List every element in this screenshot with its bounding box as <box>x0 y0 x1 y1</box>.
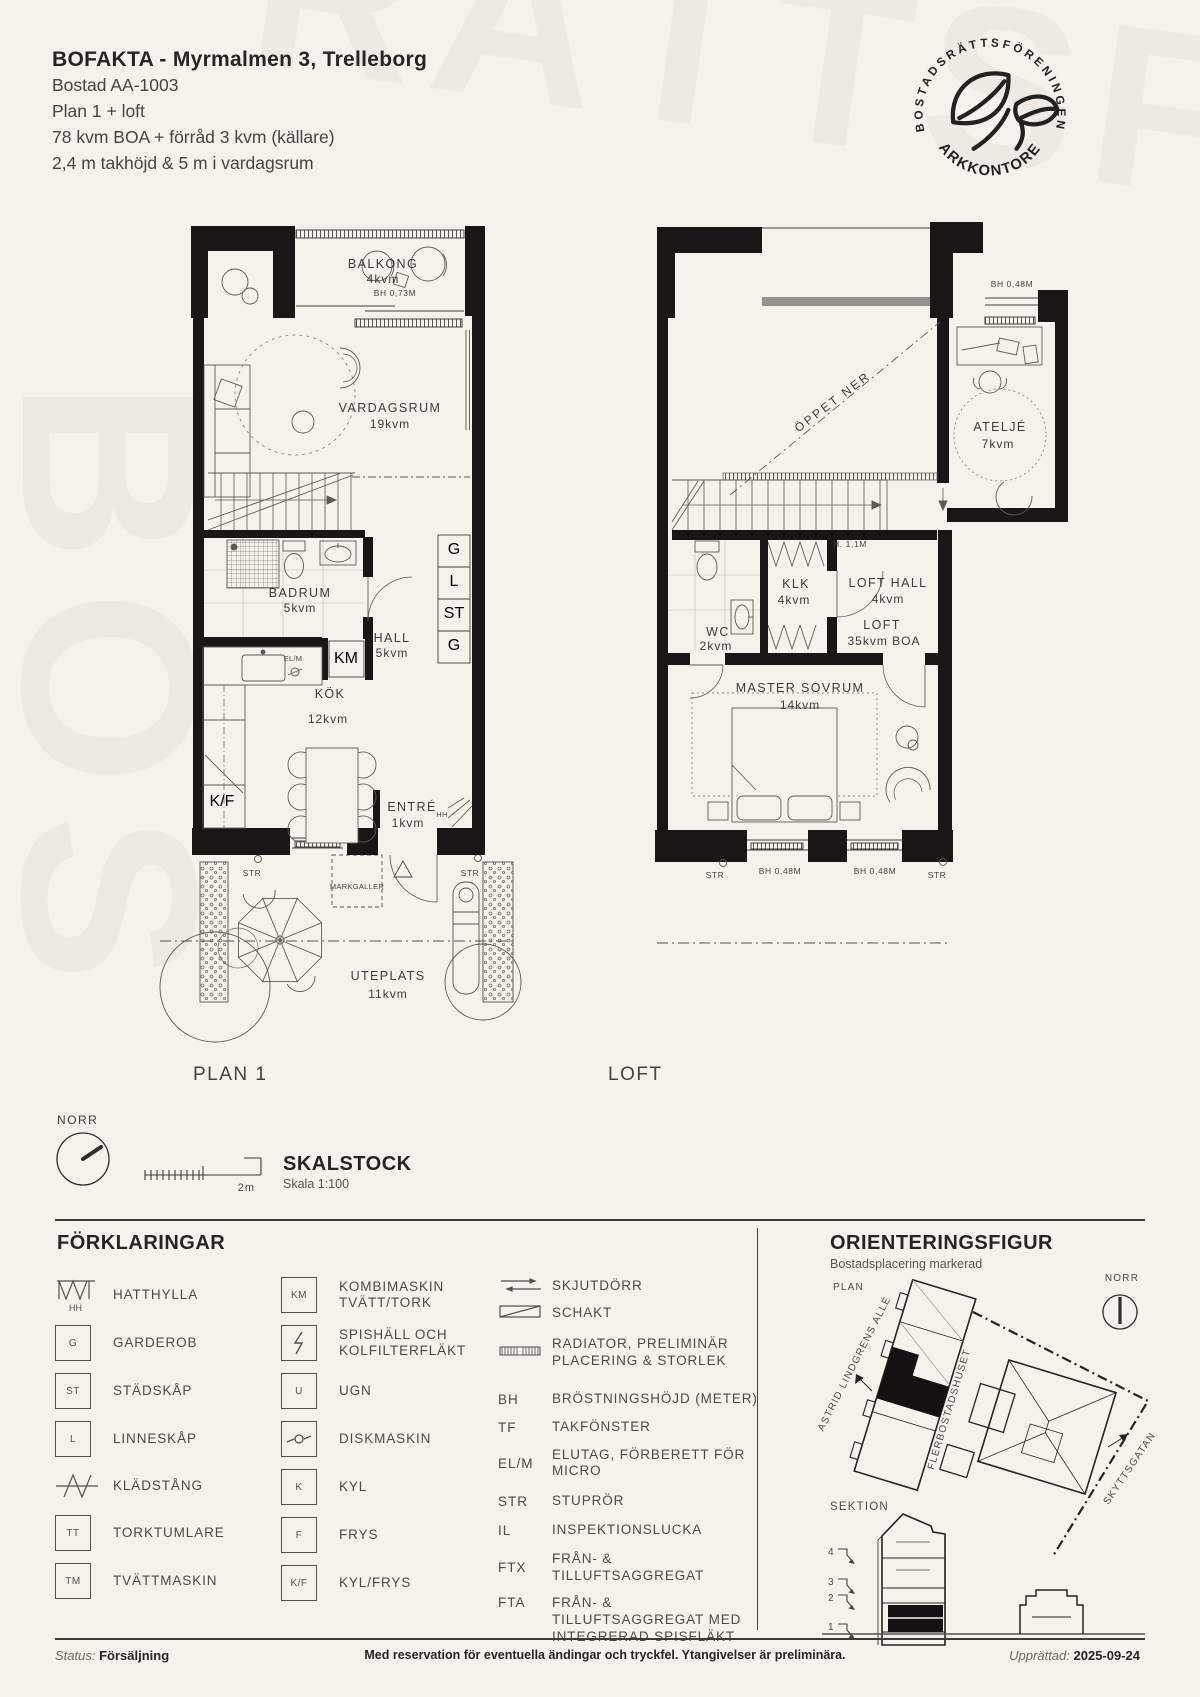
legend-label: SCHAKT <box>552 1305 612 1322</box>
legend-item-hatthylla: HH HATTHYLLA <box>55 1277 270 1313</box>
neighbor-building <box>978 1360 1116 1494</box>
room-label-kok: KÖK <box>315 687 346 701</box>
parkkontoret-logo: BOSTADSRÄTTSFÖRENINGEN •PARKKONTORET• <box>898 22 1082 206</box>
floor-label-2: 2 <box>828 1593 835 1604</box>
legend-label: KLÄDSTÅNG <box>113 1478 203 1494</box>
created-value: 2025-09-24 <box>1074 1648 1141 1663</box>
legend-label: RADIATOR, PRELIMINÄR PLACERING & STORLEK <box>552 1336 752 1370</box>
header-plan: Plan 1 + loft <box>52 98 427 124</box>
legend-item-stadskap: ST STÄDSKÅP <box>55 1373 270 1409</box>
abbr-ftx: FTX <box>498 1560 552 1575</box>
legend-col3: SKJUTDÖRR SCHAKT RADIATOR, PRELIMINÄR PL… <box>498 1277 760 1645</box>
norr-label: NORR <box>57 1113 98 1127</box>
legend-label: FRÅN- & TILLUFTSAGGREGAT <box>552 1551 760 1585</box>
legend-item-linneskap: L LINNESKÅP <box>55 1421 270 1457</box>
room-label-atelje: ATELJÉ <box>973 419 1026 434</box>
str-label: STR <box>706 870 725 880</box>
skalstock-title: SKALSTOCK <box>283 1153 412 1176</box>
stupror-icon <box>255 856 262 863</box>
garderob-symbol: G <box>55 1325 91 1361</box>
header: BOFAKTA - Myrmalmen 3, Trelleborg Bostad… <box>52 48 427 176</box>
kladstang-icon <box>55 1473 99 1499</box>
orientering-title: ORIENTERINGSFIGUR <box>830 1232 1053 1255</box>
tvattmaskin-symbol: TM <box>55 1563 91 1599</box>
closet-label-st: ST <box>444 605 465 622</box>
legend-item-kylfrys: K/F KYL/FRYS <box>281 1565 493 1601</box>
abbr-tf: TF <box>498 1420 552 1435</box>
skala-value: Skala 1:100 <box>283 1177 349 1191</box>
room-area-kok: 12kvm <box>308 712 348 726</box>
sektion-label: SEKTION <box>830 1501 889 1513</box>
room-label-entre: ENTRÉ <box>387 799 436 814</box>
legend-item-skjutdorr: SKJUTDÖRR <box>498 1277 760 1296</box>
legend-label: INSPEKTIONSLUCKA <box>552 1522 702 1539</box>
legend-item-garderob: G GARDEROB <box>55 1325 270 1361</box>
oppet-ner-label: ÖPPET NER <box>792 369 874 435</box>
leaf-icon <box>953 73 1058 148</box>
scale-bar: 2m <box>143 1153 278 1195</box>
scale-length-label: 2m <box>238 1182 255 1194</box>
room-label-loft: LOFT <box>863 618 901 632</box>
room-area-wc: 2kvm <box>700 639 733 653</box>
legend-label: TORKTUMLARE <box>113 1525 225 1541</box>
footer-status: Status: Försäljning <box>55 1648 169 1663</box>
hatthylla-icon: HH <box>55 1277 99 1313</box>
linneskap-symbol: L <box>55 1421 91 1457</box>
bofakta-page: RÄTTSF BOS BOFAKTA - Myrmalmen 3, Trelle… <box>0 0 1200 1697</box>
abbr-bh: BH <box>498 1392 552 1407</box>
legend-item-kombimaskin: KM KOMBIMASKIN TVÄTT/TORK <box>281 1277 493 1313</box>
legend-label: SKJUTDÖRR <box>552 1278 643 1295</box>
markgaller-label: MARKGALLER <box>330 882 385 891</box>
kylfrys-symbol: K/F <box>281 1565 317 1601</box>
skjutdorr-icon <box>498 1277 552 1296</box>
legend-item-spishall: SPISHÄLL OCH KOLFILTERFLÄKT <box>281 1325 493 1361</box>
legend-item-ugn: U UGN <box>281 1373 493 1409</box>
room-label-uteplats: UTEPLATS <box>351 969 426 983</box>
room-label-hall: HALL <box>374 631 411 645</box>
room-area-hall: 5kvm <box>376 646 409 660</box>
legend-item-bh: BH BRÖSTNINGSHÖJD (METER) <box>498 1391 760 1408</box>
legend-item-il: IL INSPEKTIONSLUCKA <box>498 1522 760 1539</box>
svg-text:HH: HH <box>69 1303 82 1313</box>
legend-label: LINNESKÅP <box>113 1431 197 1447</box>
room-label-badrum: BADRUM <box>269 586 332 600</box>
floor-label-1: 1 <box>828 1622 835 1633</box>
footer-divider <box>55 1638 1145 1640</box>
legend-label: TVÄTTMASKIN <box>113 1573 217 1589</box>
str-label: STR <box>461 868 480 878</box>
room-label-loft-hall: LOFT HALL <box>848 576 927 590</box>
radiator-icon <box>498 1345 552 1360</box>
orientering-norr-label: NORR <box>1105 1273 1139 1284</box>
kombimaskin-symbol: KM <box>281 1277 317 1313</box>
abbr-il: IL <box>498 1523 552 1538</box>
room-area-uteplats: 11kvm <box>368 987 407 1001</box>
floor-label-4: 4 <box>828 1547 835 1558</box>
orientering-figure: PLAN NORR <box>760 1265 1200 1655</box>
legend-label: KOMBIMASKIN TVÄTT/TORK <box>339 1279 489 1311</box>
bh-annotation: BH 0,48M <box>991 279 1034 289</box>
room-area-badrum: 5kvm <box>284 601 317 615</box>
plan1-fixtures <box>203 247 472 843</box>
legend-item-schakt: SCHAKT <box>498 1304 760 1322</box>
bh-annotation: BH 0,48M <box>759 866 802 876</box>
site-plan <box>847 1277 1148 1556</box>
legend-item-kladstang: KLÄDSTÅNG <box>55 1469 270 1503</box>
closet-label-g1: G <box>448 541 460 558</box>
spishall-icon <box>281 1325 317 1361</box>
km-annotation: KM <box>334 650 358 667</box>
room-area-entre: 1kvm <box>392 816 425 830</box>
legend-item-radiator: RADIATOR, PRELIMINÄR PLACERING & STORLEK <box>498 1336 760 1370</box>
legend-item-tf: TF TAKFÖNSTER <box>498 1419 760 1436</box>
footer-created: Upprättad: 2025-09-24 <box>1009 1648 1140 1663</box>
room-area-loft: 35kvm BOA <box>847 634 920 648</box>
legend-item-kyl: K KYL <box>281 1469 493 1505</box>
created-label: Upprättad: <box>1009 1648 1070 1663</box>
plan1-caption: PLAN 1 <box>193 1064 267 1086</box>
orientering-compass-icon <box>1103 1295 1137 1329</box>
legend-label: GARDEROB <box>113 1335 197 1351</box>
page-title: BOFAKTA - Myrmalmen 3, Trelleborg <box>52 48 427 72</box>
abbr-elm: EL/M <box>498 1456 552 1471</box>
legend-label: BRÖSTNINGSHÖJD (METER) <box>552 1391 758 1408</box>
legend-item-elm: EL/M ELUTAG, FÖRBERETT FÖR MICRO <box>498 1447 760 1481</box>
neighbor-section-building <box>1020 1590 1083 1634</box>
legend-label: ELUTAG, FÖRBERETT FÖR MICRO <box>552 1447 760 1481</box>
room-area-master: 14kvm <box>780 698 820 712</box>
legend-label: HATTHYLLA <box>113 1287 198 1303</box>
legend-label: KYL/FRYS <box>339 1575 411 1591</box>
vent-triangle-icon <box>394 861 412 877</box>
legend-item-torktumlare: TT TORKTUMLARE <box>55 1515 270 1551</box>
header-address: Bostad AA-1003 <box>52 72 427 98</box>
floor-label-3: 3 <box>828 1577 835 1588</box>
frys-symbol: F <box>281 1517 317 1553</box>
header-area: 78 kvm BOA + förråd 3 kvm (källare) <box>52 124 427 150</box>
abbr-fta: FTA <box>498 1595 552 1610</box>
compass-icon <box>52 1128 116 1192</box>
footer-disclaimer: Med reservation för eventuella ändingar … <box>330 1648 880 1662</box>
legend-label: SPISHÄLL OCH KOLFILTERFLÄKT <box>339 1327 489 1359</box>
stair-height-annotation: H. 1,1M <box>833 539 867 549</box>
legend-title: FÖRKLARINGAR <box>57 1232 225 1255</box>
status-value: Försäljning <box>99 1648 169 1663</box>
diskmaskin-icon <box>281 1421 317 1457</box>
legend-item-str: STR STUPRÖR <box>498 1493 760 1510</box>
sektion-drawing <box>822 1514 1145 1645</box>
legend-col2: KM KOMBIMASKIN TVÄTT/TORK SPISHÄLL OCH K… <box>281 1277 493 1613</box>
room-area-vardagsrum: 19kvm <box>370 417 410 431</box>
room-label-klk: KLK <box>782 577 810 591</box>
legend-label: UGN <box>339 1383 372 1399</box>
street-label-right: SKYTTSGATAN <box>1102 1430 1159 1507</box>
lounge-chair-icon <box>453 882 479 994</box>
bh-annotation: BH 0,48M <box>854 866 897 876</box>
ugn-symbol: U <box>281 1373 317 1409</box>
legend-label: KYL <box>339 1479 367 1495</box>
room-label-balkong: BALKONG <box>348 257 418 271</box>
torktumlare-symbol: TT <box>55 1515 91 1551</box>
legend-label: STÄDSKÅP <box>113 1383 192 1399</box>
loft-caption: LOFT <box>608 1064 663 1086</box>
room-area-balkong: 4kvm <box>367 272 400 286</box>
loft-drawing: ÖPPET NER BH 0,48M ATELJÉ 7kvm H. 1,1M K… <box>600 200 1090 1090</box>
orientering-plan-label: PLAN <box>833 1282 864 1293</box>
street-label-left: ASTRID LINDGRENS ALLÉ <box>814 1294 894 1433</box>
legend-col1: HH HATTHYLLA G GARDEROB ST STÄDSKÅP L LI… <box>55 1277 270 1611</box>
legend-item-frys: F FRYS <box>281 1517 493 1553</box>
legend-item-tvattmaskin: TM TVÄTTMASKIN <box>55 1563 270 1599</box>
markgaller-area <box>332 855 382 907</box>
room-area-klk: 4kvm <box>778 593 811 607</box>
stadskap-symbol: ST <box>55 1373 91 1409</box>
schakt-icon <box>498 1304 552 1322</box>
room-area-loft-hall: 4kvm <box>872 592 905 606</box>
legend-item-diskmaskin: DISKMASKIN <box>281 1421 493 1457</box>
hh-annotation: HH <box>436 810 447 819</box>
abbr-str: STR <box>498 1494 552 1509</box>
status-label: Status: <box>55 1648 95 1663</box>
legend-item-ftx: FTX FRÅN- & TILLUFTSAGGREGAT <box>498 1551 760 1585</box>
room-area-atelje: 7kvm <box>982 437 1015 451</box>
bh-annotation: BH 0,73M <box>374 288 417 298</box>
room-label-master: MASTER SOVRUM <box>736 681 865 695</box>
room-label-vardagsrum: VARDAGSRUM <box>339 401 442 415</box>
kf-annotation: K/F <box>210 793 235 810</box>
legend-label: DISKMASKIN <box>339 1431 431 1447</box>
str-label: STR <box>928 870 947 880</box>
legend-label: TAKFÖNSTER <box>552 1419 651 1436</box>
stupror-icon <box>475 855 482 862</box>
legend-label: FRYS <box>339 1527 378 1543</box>
closet-label-g2: G <box>448 637 460 654</box>
closet-label-l: L <box>450 573 459 590</box>
room-label-wc: WC <box>706 625 730 639</box>
kyl-symbol: K <box>281 1469 317 1505</box>
legend-label: STUPRÖR <box>552 1493 624 1510</box>
header-height: 2,4 m takhöjd & 5 m i vardagsrum <box>52 150 427 176</box>
elm-annotation: EL/M <box>284 654 303 663</box>
plan1-drawing: BALKONG 4kvm BH 0,73M VARDAGSRUM 19kvm B… <box>155 200 525 1090</box>
str-label: STR <box>243 868 262 878</box>
section-divider <box>55 1219 1145 1221</box>
